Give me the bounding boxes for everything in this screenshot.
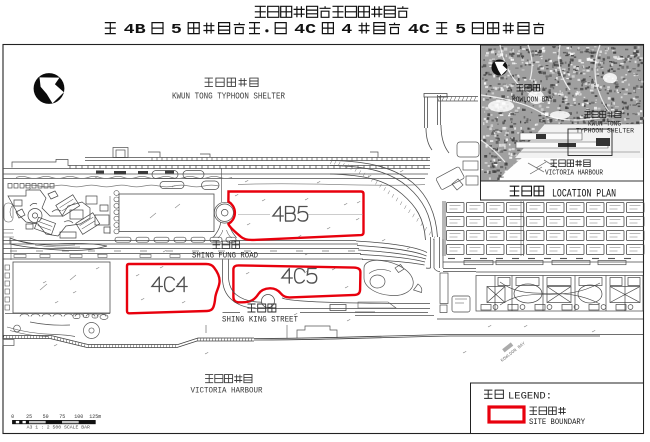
svg-text:5: 5: [171, 22, 182, 38]
svg-text:100: 100: [74, 414, 83, 420]
svg-text:KOWLOON BAY: KOWLOON BAY: [512, 97, 554, 105]
svg-text:4C: 4C: [294, 22, 317, 38]
svg-text:KWUN TONG: KWUN TONG: [588, 121, 621, 128]
svg-text:0: 0: [11, 414, 14, 420]
svg-text:4C: 4C: [408, 22, 431, 38]
svg-text:4B: 4B: [124, 22, 147, 38]
svg-text:TYPHOON SHELTER: TYPHOON SHELTER: [576, 128, 634, 135]
svg-text:50: 50: [43, 414, 49, 420]
svg-text:VICTORIA HARBOUR: VICTORIA HARBOUR: [191, 386, 263, 396]
svg-text:75: 75: [59, 414, 65, 420]
svg-text:SHING KING STREET: SHING KING STREET: [222, 315, 298, 325]
svg-text:25: 25: [26, 414, 32, 420]
svg-text:KWUN TONG TYPHOON SHELTER: KWUN TONG TYPHOON SHELTER: [172, 92, 285, 102]
svg-text:LOCATION PLAN: LOCATION PLAN: [552, 189, 616, 201]
svg-text:5: 5: [455, 22, 466, 38]
svg-text:SITE BOUNDARY: SITE BOUNDARY: [529, 417, 585, 427]
svg-text:SHING FUNG ROAD: SHING FUNG ROAD: [192, 251, 258, 261]
svg-text:LEGEND:: LEGEND:: [508, 392, 552, 403]
svg-text:A3 1 : 2 500 SCALE BAR: A3 1 : 2 500 SCALE BAR: [27, 425, 90, 431]
svg-text:4: 4: [341, 22, 352, 38]
svg-text:125m: 125m: [89, 414, 101, 420]
svg-text:VICTORIA HARBOUR: VICTORIA HARBOUR: [545, 170, 604, 178]
